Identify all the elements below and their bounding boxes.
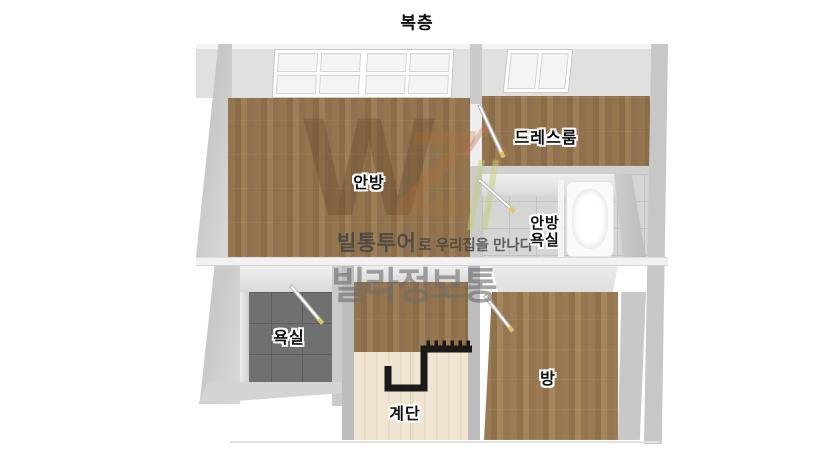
plan-bottom-edge [230, 441, 660, 443]
label-master-bathroom-line2: 욕실 [530, 232, 560, 249]
label-master-bathroom-line1: 안방 [530, 215, 560, 232]
window-pane [319, 75, 360, 94]
bathtub [566, 181, 614, 257]
master-bedroom-window [273, 50, 453, 97]
master-bedroom-floor [228, 98, 470, 257]
label-master-bathroom: 안방 욕실 [530, 215, 560, 249]
label-stairs: 계단 [389, 400, 420, 424]
window-pane [409, 53, 450, 72]
stair-railing [380, 338, 476, 396]
window-pane [276, 75, 317, 94]
bathtub-basin [572, 189, 608, 249]
bathroom-north-wall-face [240, 266, 334, 292]
stairs-north-wall-face [354, 266, 468, 282]
label-bathroom: 욕실 [273, 324, 304, 348]
window-unit [365, 53, 450, 94]
window-pane [320, 53, 361, 72]
window-pane [365, 75, 406, 94]
dressroom-window [504, 50, 572, 92]
bathroom-left-wall-face [240, 292, 249, 382]
bathroom-south-wall [198, 382, 342, 404]
window-pane [408, 75, 449, 94]
floorplan-title: 복층 [400, 9, 433, 34]
label-master-bedroom: 안방 [353, 169, 384, 193]
window-pane [538, 53, 569, 89]
label-room: 방 [540, 365, 556, 389]
room-east-wall-face [618, 292, 646, 440]
middle-horizontal-wall [196, 257, 668, 266]
dressroom-bathroom-wall [482, 166, 650, 174]
window-pane [507, 53, 538, 89]
window-pane [366, 53, 407, 72]
stairs-left-wall [342, 266, 354, 440]
window-unit [507, 53, 569, 89]
window-pane [277, 53, 318, 72]
label-dressroom: 드레스룸 [515, 124, 578, 148]
window-unit [276, 53, 361, 94]
